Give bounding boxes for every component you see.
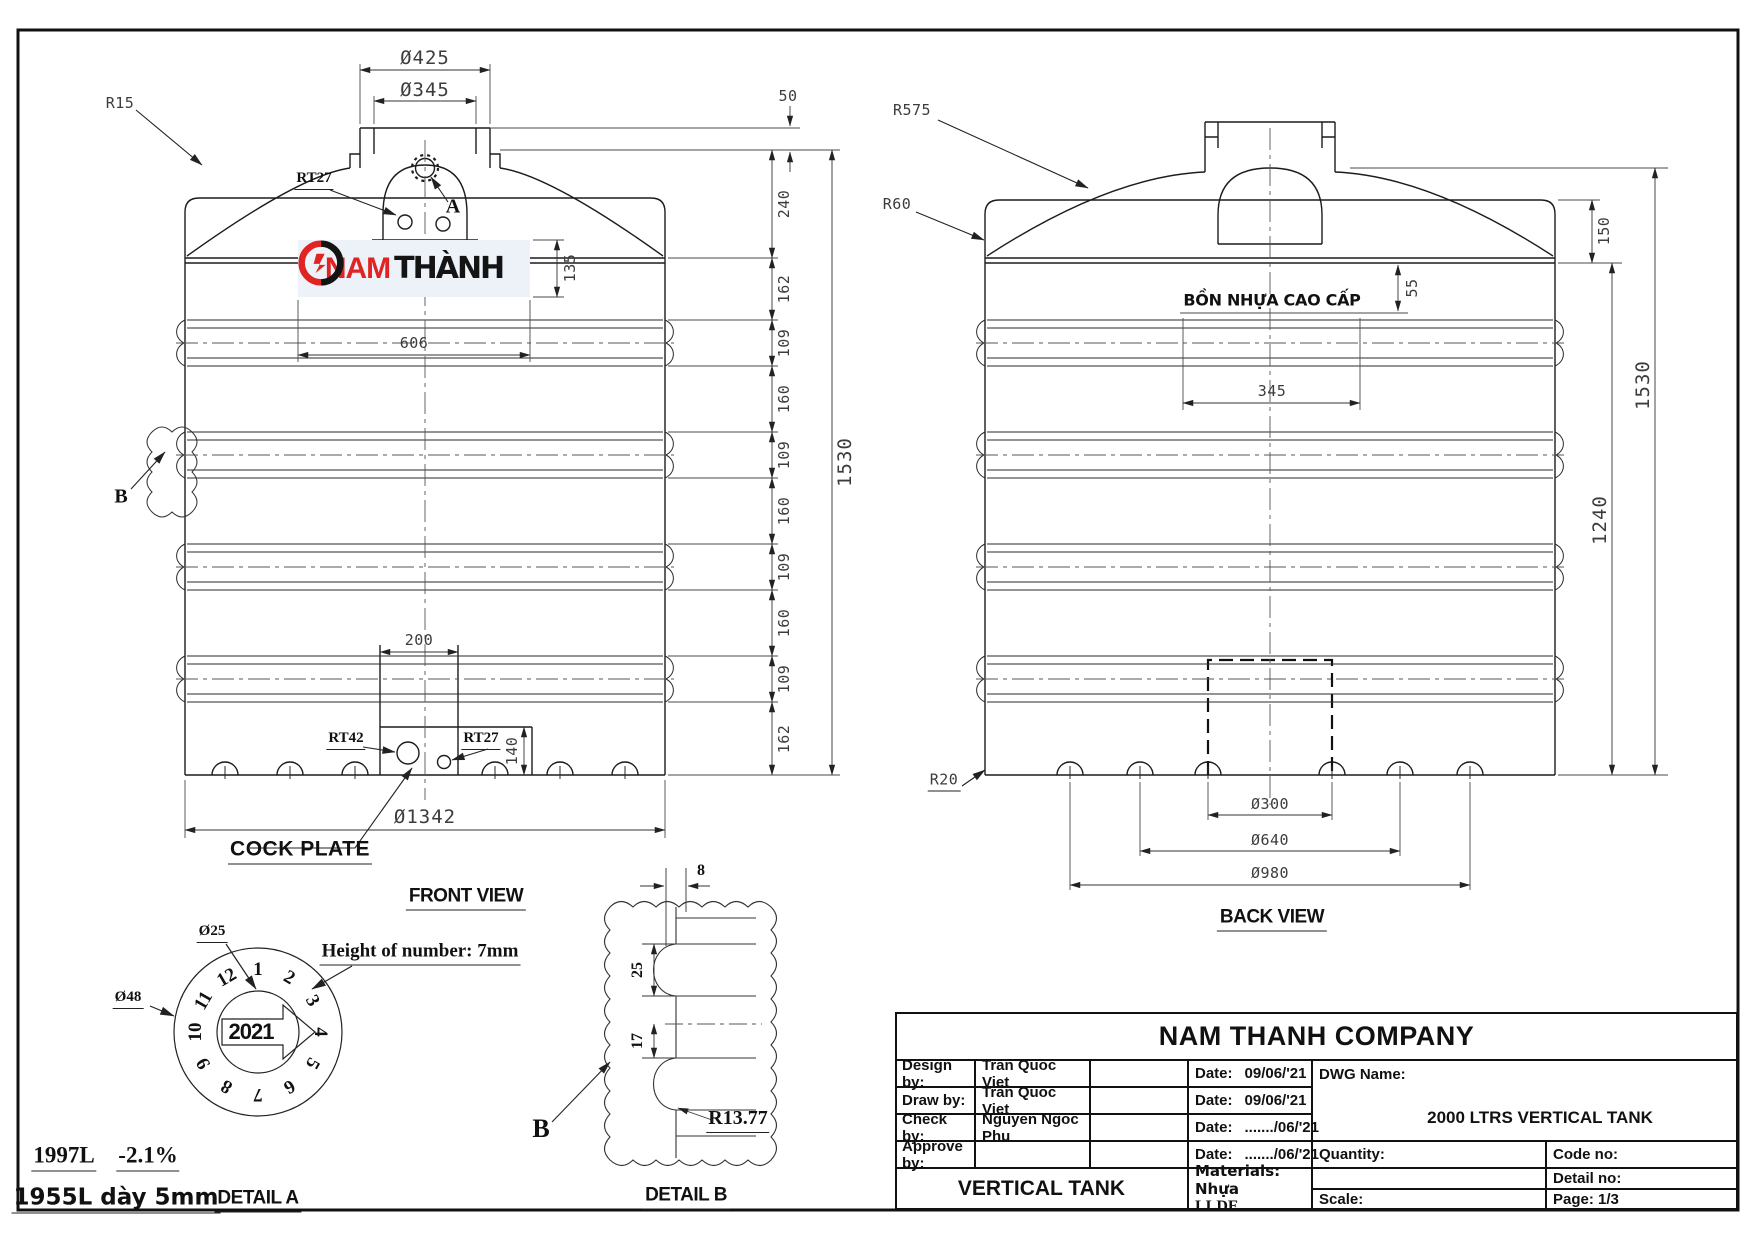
label-radius-shoulder: R60 xyxy=(883,195,912,213)
dim-plate-height: 140 xyxy=(503,737,521,766)
check-by-empty-cell xyxy=(1090,1114,1188,1141)
label-drain-large: RT42 xyxy=(326,730,365,750)
stamp-year: 2021 xyxy=(229,1019,274,1045)
design-by-empty-cell xyxy=(1090,1060,1188,1087)
dim-chain-109d: 109 xyxy=(775,665,793,694)
draw-date-cell: Date:09/06/'21 xyxy=(1188,1087,1312,1114)
page-cell: Page: 1/3 xyxy=(1546,1189,1738,1210)
volume-wall: 1955L dày 5mm xyxy=(12,1185,221,1214)
dim-top-offset: 50 xyxy=(778,87,797,105)
check-date-value: ......./06/'21 xyxy=(1245,1119,1319,1136)
draw-date-value: 09/06/'21 xyxy=(1245,1092,1307,1109)
check-date-label: Date: xyxy=(1195,1119,1233,1136)
design-by-label-cell: Design by: xyxy=(895,1060,975,1087)
approve-date-label: Date: xyxy=(1195,1146,1233,1163)
brand-text-black: THÀNH xyxy=(394,251,503,286)
dim-chain-162b: 162 xyxy=(775,725,793,754)
dim-stamp-outer: Ø48 xyxy=(113,989,144,1009)
label-rib-detail: B xyxy=(114,486,127,509)
dim-rib-gap: 17 xyxy=(629,1033,647,1049)
materials-line1: Materials: Nhựa xyxy=(1195,1162,1305,1198)
scale-label: Scale: xyxy=(1319,1191,1363,1208)
quantity-empty-cell xyxy=(1312,1168,1546,1189)
dim-chain-109b: 109 xyxy=(775,441,793,470)
materials-line2: LLDE xyxy=(1195,1198,1239,1216)
label-drain-small: RT27 xyxy=(461,730,500,750)
dwg-name-label: DWG Name: xyxy=(1319,1066,1406,1083)
quantity-cell: Quantity: xyxy=(1312,1141,1546,1168)
label-vent-hole: RT27 xyxy=(294,170,333,190)
dim-neck-inner: Ø345 xyxy=(400,79,450,101)
detail-no-label: Detail no: xyxy=(1553,1170,1621,1187)
check-date-cell: Date:......./06/'21 xyxy=(1188,1114,1312,1141)
stamp-note: Height of number: 7mm xyxy=(320,941,521,966)
dim-chain-160: 160 xyxy=(775,385,793,414)
dim-shoulder-height: 150 xyxy=(1595,217,1613,246)
dim-back-overall-height: 1530 xyxy=(1632,360,1654,410)
stamp-number-1: 1 xyxy=(253,959,263,981)
detail-no-cell: Detail no: xyxy=(1546,1168,1738,1189)
design-date-cell: Date:09/06/'21 xyxy=(1188,1060,1312,1087)
approve-by-label-cell: Approve by: xyxy=(895,1141,975,1168)
dim-logo-height: 135 xyxy=(561,254,579,283)
dim-front-overall-height: 1530 xyxy=(834,437,856,487)
tank-body-text: BỒN NHỰA CAO CẤP xyxy=(1183,291,1360,310)
back-view-leaders xyxy=(916,120,1088,786)
label-radius-top: R15 xyxy=(106,94,135,112)
dim-body-height: 1240 xyxy=(1589,495,1611,545)
draw-by-label: Draw by: xyxy=(902,1092,965,1109)
approve-date-value: ......./06/'21 xyxy=(1245,1146,1319,1163)
dwg-name-value: 2000 LTRS VERTICAL TANK xyxy=(1427,1108,1653,1128)
dim-rib-pitch: 25 xyxy=(629,962,647,978)
dim-base-diameter: Ø1342 xyxy=(394,806,456,828)
front-view-dimension-lines xyxy=(185,70,832,830)
front-view-extension-lines xyxy=(185,64,840,838)
materials-cell: Materials: Nhựa LLDE xyxy=(1188,1168,1312,1210)
front-view-caption: FRONT VIEW xyxy=(406,886,526,911)
dim-outer-circle: Ø980 xyxy=(1251,864,1289,882)
dim-chain-160b: 160 xyxy=(775,497,793,526)
page-label: Page: 1/3 xyxy=(1553,1191,1619,1208)
product-name-cell: VERTICAL TANK xyxy=(895,1168,1188,1210)
detail-b-caption: DETAIL B xyxy=(642,1185,730,1210)
dim-logo-width: 606 xyxy=(400,334,429,352)
dim-stamp-inner: Ø25 xyxy=(197,923,228,943)
code-no-cell: Code no: xyxy=(1546,1141,1738,1168)
brand-logo: NAMTHÀNH xyxy=(298,240,530,297)
dim-text-offset: 55 xyxy=(1403,278,1421,297)
label-hub-mark: A xyxy=(446,196,460,219)
approve-by-value-cell xyxy=(975,1141,1090,1168)
draw-date-label: Date: xyxy=(1195,1092,1233,1109)
label-radius-dome: R575 xyxy=(893,101,931,119)
dim-chain-160c: 160 xyxy=(775,609,793,638)
dim-middle-circle: Ø640 xyxy=(1251,831,1289,849)
dim-chain-109c: 109 xyxy=(775,553,793,582)
stamp-number-4: 4 xyxy=(309,1027,331,1037)
dwg-name-cell: DWG Name: xyxy=(1312,1060,1738,1141)
dim-chain-109: 109 xyxy=(775,329,793,358)
draw-by-empty-cell xyxy=(1090,1087,1188,1114)
back-view-dimension-lines xyxy=(1070,168,1655,885)
check-by-value: Nguyen Ngoc Phu xyxy=(982,1111,1083,1145)
dim-rib-radius: R13.77 xyxy=(706,1107,769,1133)
check-by-value-cell: Nguyen Ngoc Phu xyxy=(975,1114,1090,1141)
dim-text-width: 345 xyxy=(1258,382,1287,400)
drawing-sheet: NAMTHÀNH Ø425 Ø345 50 R15 RT27 A 240 162… xyxy=(0,0,1755,1240)
back-view-extension-lines xyxy=(1070,168,1668,890)
quantity-label: Quantity: xyxy=(1319,1146,1385,1163)
back-view-centerlines xyxy=(976,128,1564,805)
volume-tolerance: -2.1% xyxy=(116,1143,179,1172)
company-name: NAM THANH COMPANY xyxy=(1159,1021,1474,1052)
product-name: VERTICAL TANK xyxy=(958,1177,1125,1201)
stamp-number-7: 7 xyxy=(253,1083,263,1105)
dim-chain-240: 240 xyxy=(775,190,793,219)
dim-chain-162: 162 xyxy=(775,275,793,304)
label-radius-bottom: R20 xyxy=(928,771,961,792)
volume-full: 1997L xyxy=(31,1143,96,1172)
code-no-label: Code no: xyxy=(1553,1146,1618,1163)
scale-cell: Scale: xyxy=(1312,1189,1546,1210)
design-date-label: Date: xyxy=(1195,1065,1233,1082)
dim-plate-width: 200 xyxy=(405,631,434,649)
back-view-caption: BACK VIEW xyxy=(1217,907,1327,932)
approve-by-empty-cell xyxy=(1090,1141,1188,1168)
dim-inner-circle: Ø300 xyxy=(1251,795,1289,813)
design-date-value: 09/06/'21 xyxy=(1245,1065,1307,1082)
approve-by-label: Approve by: xyxy=(902,1138,968,1172)
brand-logo-icon xyxy=(298,240,344,286)
dim-neck-outer: Ø425 xyxy=(400,47,450,69)
dim-rib-depth: 8 xyxy=(697,862,705,880)
design-by-label: Design by: xyxy=(902,1057,968,1091)
detail-b-label: B xyxy=(532,1114,549,1144)
title-block-company-cell: NAM THANH COMPANY xyxy=(895,1012,1738,1060)
label-cock-plate: COCK PLATE xyxy=(228,838,372,865)
detail-a-caption: DETAIL A xyxy=(214,1188,301,1213)
stamp-number-10: 10 xyxy=(185,1023,207,1042)
